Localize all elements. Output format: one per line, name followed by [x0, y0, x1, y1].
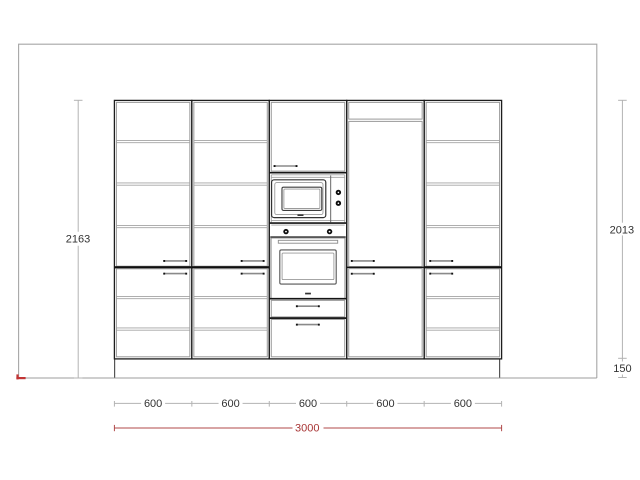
svg-text:2013: 2013	[610, 224, 634, 236]
svg-text:600: 600	[376, 398, 394, 410]
svg-text:3000: 3000	[295, 422, 319, 434]
svg-text:600: 600	[299, 398, 317, 410]
svg-text:150: 150	[613, 363, 631, 375]
svg-text:600: 600	[144, 398, 162, 410]
svg-text:2163: 2163	[66, 234, 90, 246]
svg-text:600: 600	[221, 398, 239, 410]
svg-text:600: 600	[454, 398, 472, 410]
